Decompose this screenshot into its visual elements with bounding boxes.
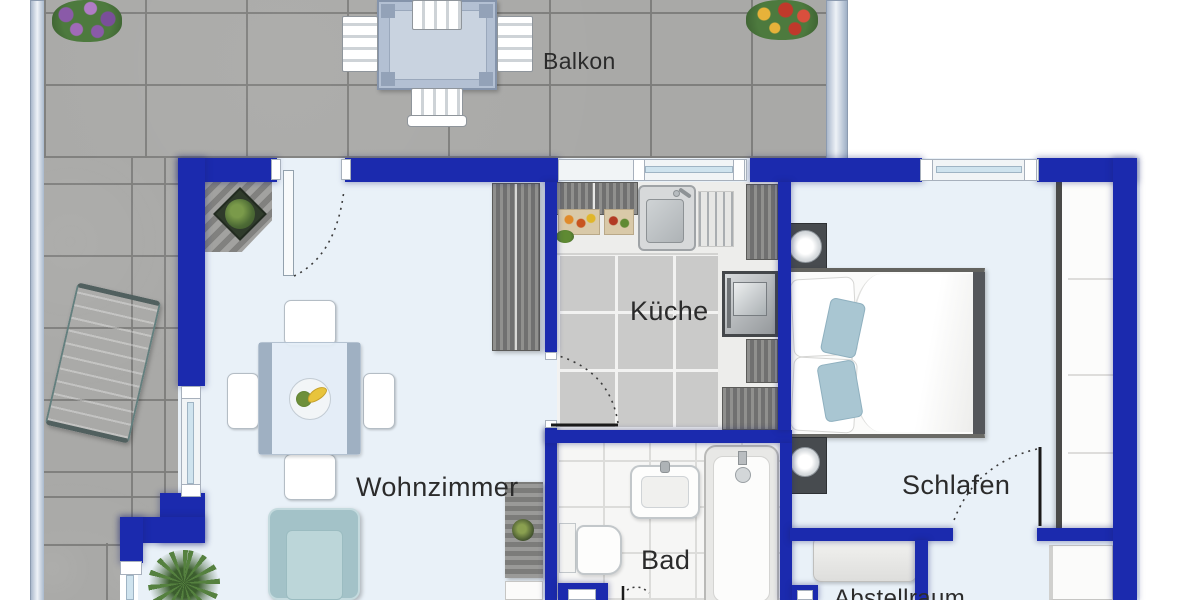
- flower-box-purple: [52, 0, 122, 42]
- washbasin-bowl: [641, 476, 689, 508]
- room-label-schlafen: Schlafen: [902, 470, 1010, 501]
- kitchen-sink: [638, 185, 696, 251]
- balcony-door-jamb: [271, 159, 281, 180]
- faucet-base: [673, 190, 680, 197]
- balcony-floor-left-low: [44, 543, 120, 600]
- wall-kitchen-bottom: [545, 430, 792, 443]
- toilet-bowl: [576, 525, 622, 575]
- floor-plan-canvas: Balkon Küche Wohnzimmer Bad Schlafen Abs…: [0, 0, 1200, 600]
- drainboard: [698, 191, 734, 247]
- kitchen-door-jamb: [545, 420, 557, 428]
- bath-door-frame-marker: [568, 589, 596, 600]
- dining-chair-bottom: [284, 454, 336, 500]
- dining-chair-left: [227, 373, 259, 429]
- wardrobe-seam: [1068, 374, 1113, 376]
- armchair-seat: [286, 530, 343, 600]
- washbasin: [630, 465, 700, 519]
- banana: [305, 384, 329, 406]
- balcony-chair-right: [497, 16, 533, 72]
- tall-cabinet-seam: [515, 184, 517, 350]
- armchair: [268, 508, 360, 600]
- kitchen-door-jamb: [545, 352, 557, 360]
- hall-cabinet: [1049, 545, 1113, 600]
- oven: [722, 271, 778, 337]
- kitchen-window-cap: [633, 159, 645, 181]
- washbasin-faucet-icon: [660, 461, 670, 473]
- bed-footboard: [973, 272, 985, 434]
- wall-kitchen-left-a: [545, 182, 557, 352]
- wall-bed-bottom-a: [790, 528, 953, 541]
- balcony-table-post: [381, 4, 395, 18]
- balcony-chair-left: [342, 16, 378, 72]
- corner-shelf-plant: [225, 199, 255, 229]
- oven-handle: [727, 278, 731, 328]
- living-window-left-cap: [181, 386, 201, 399]
- nightstand-lamp-top: [789, 230, 822, 263]
- tall-cabinet: [492, 183, 540, 351]
- balcony-table-post: [381, 72, 395, 86]
- kitchen-cabinet-c: [722, 387, 778, 430]
- dining-chair-right: [363, 373, 395, 429]
- oven-door: [733, 282, 767, 316]
- cutting-board-vegetables-2: [604, 209, 634, 235]
- balcony-table-post: [479, 4, 493, 18]
- balcony-chair-bottom: [411, 88, 463, 118]
- wall-bed-bottom-b: [1037, 528, 1115, 541]
- wall-bath-bed-divider: [780, 443, 792, 600]
- room-label-abstellraum: Abstellraum: [834, 585, 965, 600]
- wall-left: [178, 158, 205, 386]
- double-bed: [787, 268, 985, 438]
- living-window-low-glass: [126, 575, 134, 600]
- balcony-chair-top: [412, 0, 462, 30]
- dining-table-rail-left: [259, 343, 272, 454]
- tub-faucet-knob: [735, 467, 751, 483]
- wall-jog-c: [120, 517, 143, 563]
- wall-top-c: [750, 158, 922, 182]
- duvet: [851, 274, 973, 432]
- storage-door-frame-marker: [797, 590, 813, 600]
- living-window-left-cap: [181, 484, 201, 497]
- herb-sprig: [556, 230, 574, 243]
- bedroom-window-glass: [936, 166, 1022, 173]
- kitchen-window-cap: [733, 159, 745, 181]
- balcony-table-post: [479, 72, 493, 86]
- nightstand-lamp-bottom: [790, 447, 820, 477]
- room-label-wohnzimmer: Wohnzimmer: [356, 472, 519, 503]
- living-window-low-cap: [120, 561, 142, 575]
- kitchen-cabinet-a: [746, 184, 778, 260]
- bathtub: [704, 445, 779, 600]
- dining-chair-top: [284, 300, 336, 346]
- room-label-balkon: Balkon: [543, 48, 616, 75]
- wardrobe-seam: [1068, 278, 1113, 280]
- kitchen-window-glass: [645, 166, 733, 173]
- lowboard: [505, 581, 543, 600]
- balcony-right-railing: [826, 0, 848, 160]
- dining-table-rail-right: [347, 343, 360, 454]
- bedroom-window-cap: [920, 159, 933, 181]
- faucet-icon: [678, 187, 692, 198]
- room-label-bad: Bad: [641, 545, 690, 576]
- room-label-kueche: Küche: [630, 296, 709, 327]
- sideboard-plant: [512, 519, 534, 541]
- living-window-left-glass: [187, 402, 194, 484]
- kitchen-cabinet-b: [746, 339, 778, 383]
- wall-right: [1113, 158, 1137, 600]
- wall-top-b: [345, 158, 558, 182]
- toilet-tank: [559, 523, 576, 573]
- sink-basin: [646, 199, 684, 243]
- wardrobe-seam: [1068, 452, 1113, 454]
- bedroom-window-cap: [1024, 159, 1037, 181]
- balcony-chair-bottom-back: [407, 115, 467, 127]
- tub-faucet-stem: [738, 451, 747, 465]
- wall-kitchen-left-b: [545, 428, 557, 600]
- balcony-door-leaf: [283, 170, 294, 276]
- fruit-bowl: [289, 378, 331, 420]
- wardrobe: [1056, 182, 1113, 532]
- balcony-door-jamb: [341, 159, 351, 180]
- wall-kitchen-right: [778, 182, 791, 430]
- flower-box-red: [746, 0, 818, 40]
- storage-dresser: [813, 536, 917, 582]
